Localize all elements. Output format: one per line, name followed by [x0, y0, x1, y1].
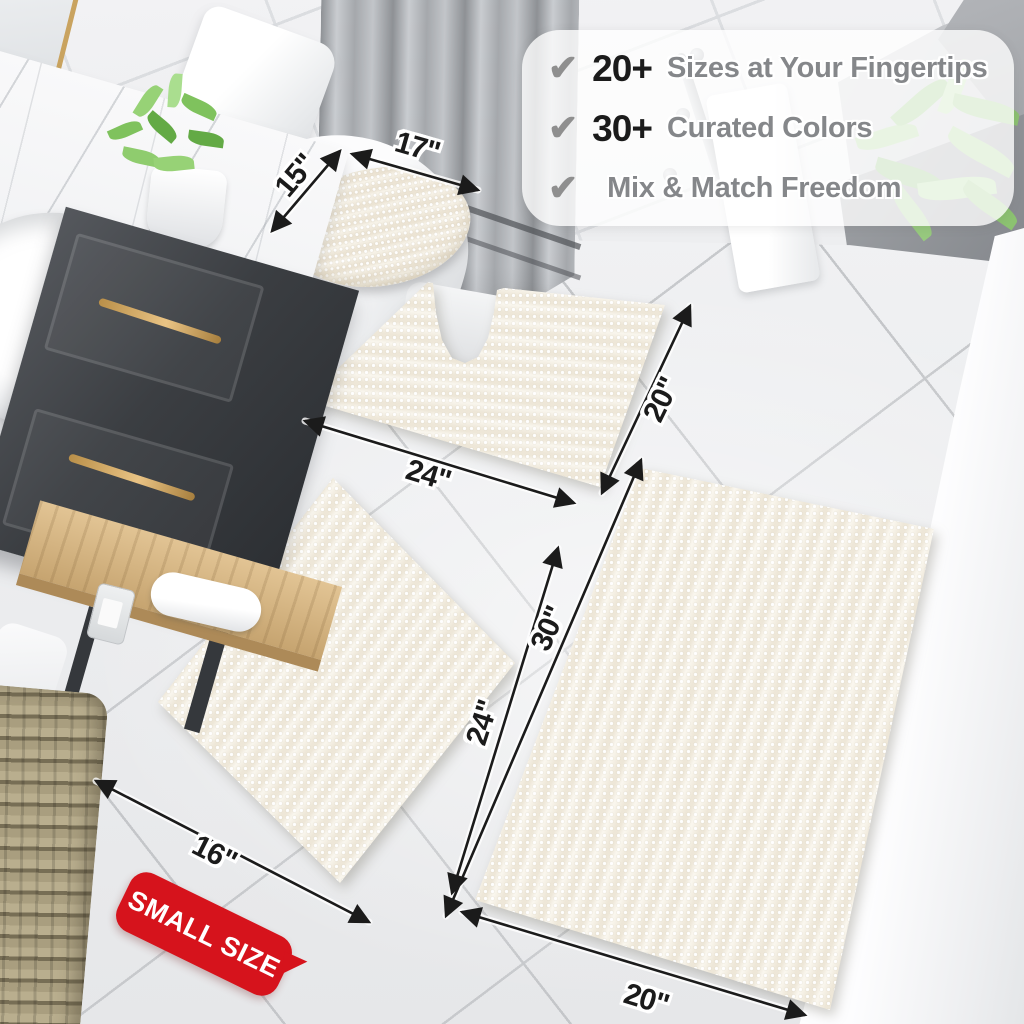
callout-text: Curated Colors — [667, 114, 872, 143]
vanity-plant — [100, 76, 232, 194]
contour-rug-texture — [300, 278, 670, 490]
checkmark-icon — [548, 50, 578, 86]
callout-row-colors: 30+ Curated Colors — [548, 102, 1014, 154]
checkmark-icon — [548, 110, 578, 146]
checkmark-icon — [548, 170, 578, 206]
contour-rug — [300, 278, 670, 490]
plant-leaf — [167, 73, 182, 108]
plant-leaf — [187, 130, 225, 149]
callout-text: Mix & Match Freedom — [607, 174, 901, 203]
jar-label — [97, 598, 123, 629]
callout-row-sizes: 20+ Sizes at Your Fingertips — [548, 42, 1014, 94]
large-rug — [475, 468, 934, 1010]
plant-leaf — [144, 110, 181, 144]
badge-tail — [281, 951, 308, 977]
callout-row-mix-match: Mix & Match Freedom — [548, 162, 1014, 214]
product-image: 20+ Sizes at Your Fingertips 30+ Curated… — [0, 0, 1024, 1024]
plant-leaf — [153, 154, 194, 173]
callout-number: 20+ — [592, 50, 652, 87]
callout-number: 30+ — [592, 110, 652, 147]
large-rug-texture — [475, 468, 934, 1010]
callout-text: Sizes at Your Fingertips — [667, 54, 987, 83]
plant-leaf — [179, 93, 219, 121]
plant-leaf — [107, 118, 143, 144]
feature-callout: 20+ Sizes at Your Fingertips 30+ Curated… — [522, 30, 1014, 226]
